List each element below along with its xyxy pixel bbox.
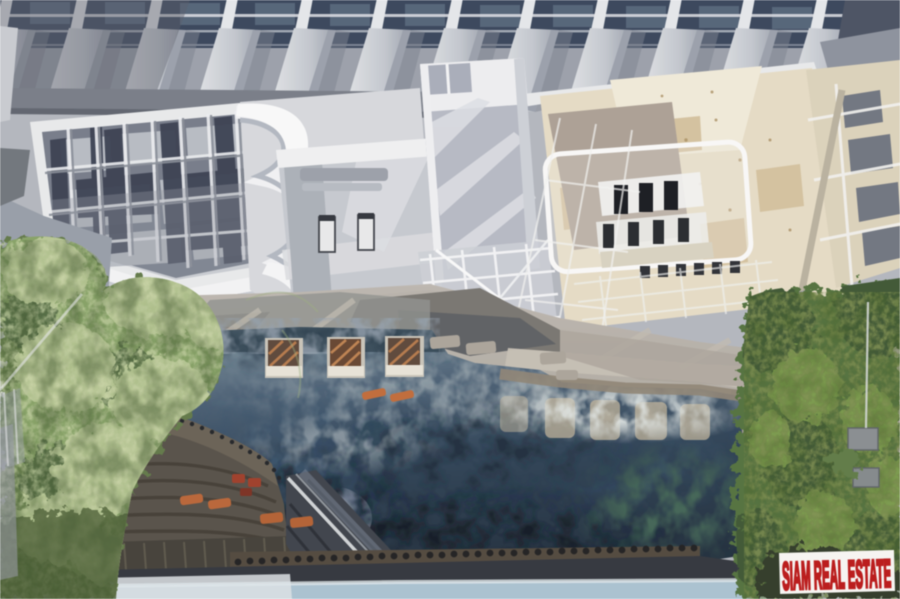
svg-text:SIAM REAL ESTATE: SIAM REAL ESTATE (782, 553, 892, 599)
